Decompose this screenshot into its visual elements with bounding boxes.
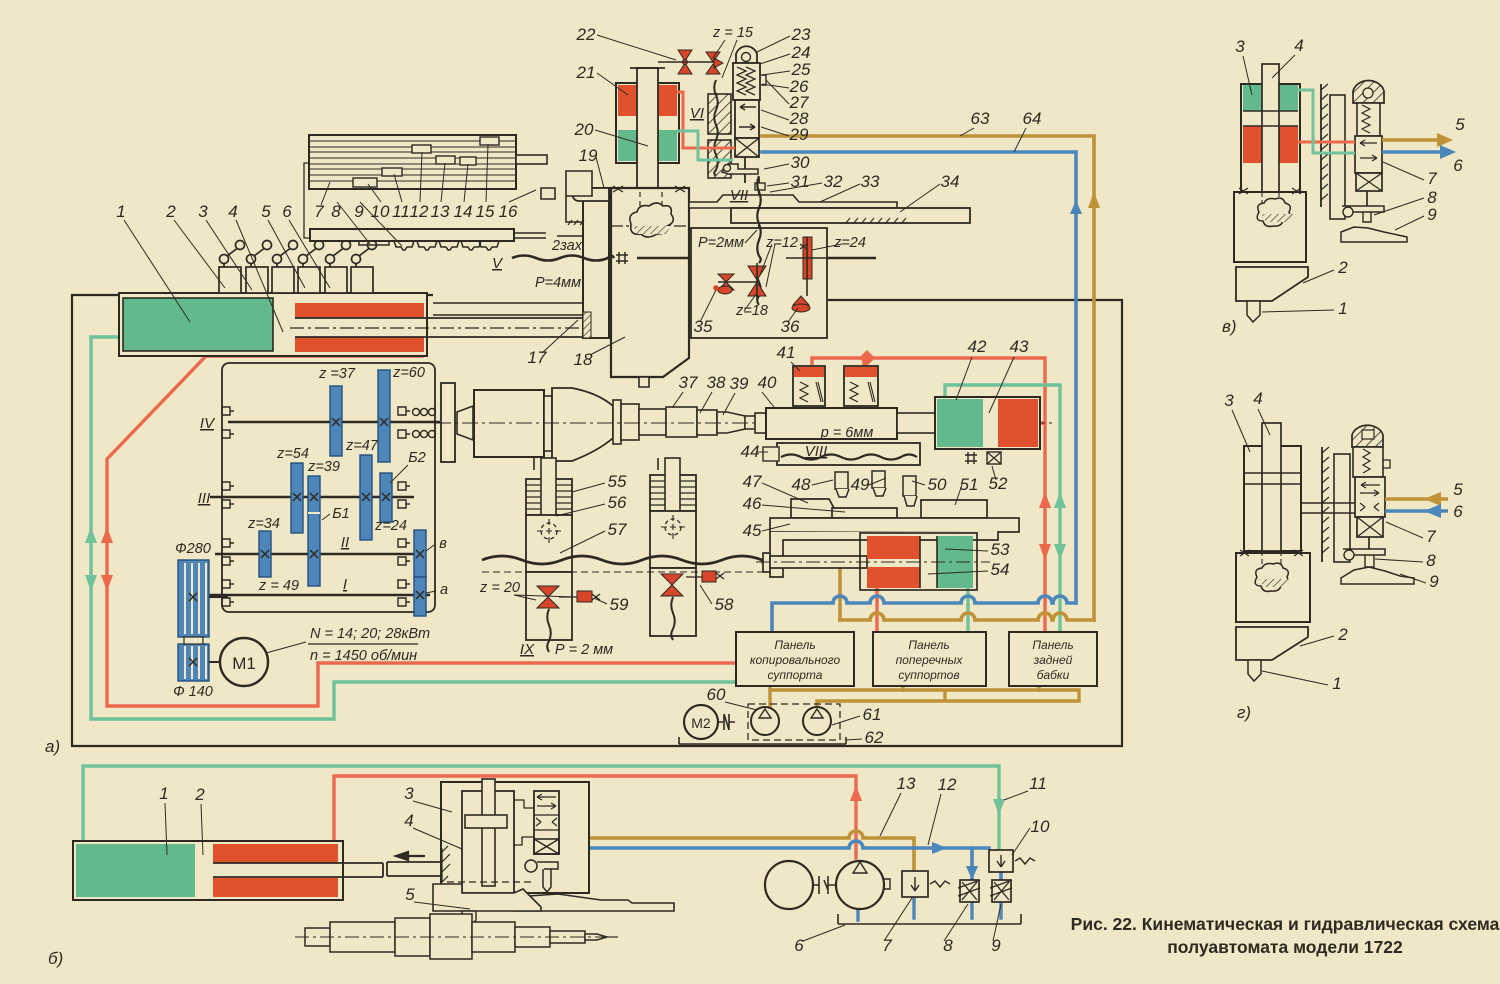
svg-text:12: 12: [938, 775, 957, 794]
svg-text:n = 1450 об/мин: n = 1450 об/мин: [310, 648, 417, 664]
svg-text:5: 5: [405, 885, 415, 904]
svg-text:7: 7: [314, 202, 324, 221]
svg-text:33: 33: [861, 172, 880, 191]
svg-text:поперечных: поперечных: [896, 653, 964, 667]
svg-text:1: 1: [1338, 299, 1347, 318]
svg-text:62: 62: [865, 728, 884, 747]
svg-text:б): б): [48, 949, 63, 968]
svg-text:63: 63: [971, 109, 990, 128]
svg-text:копировального: копировального: [750, 653, 841, 667]
svg-text:42: 42: [968, 337, 987, 356]
svg-text:49: 49: [851, 475, 870, 494]
svg-text:8: 8: [1426, 551, 1436, 570]
svg-text:11: 11: [1029, 774, 1047, 793]
svg-text:Панель: Панель: [908, 638, 949, 652]
svg-text:52: 52: [989, 474, 1008, 493]
svg-text:Рис. 22. Кинематическая и гидр: Рис. 22. Кинематическая и гидравлическая…: [1071, 914, 1500, 934]
svg-text:16: 16: [499, 202, 518, 221]
svg-text:2заx: 2заx: [551, 238, 583, 254]
svg-text:z=24: z=24: [374, 518, 407, 534]
svg-text:64: 64: [1023, 109, 1042, 128]
svg-text:Р=2мм: Р=2мм: [698, 235, 744, 251]
svg-text:6: 6: [1453, 502, 1463, 521]
svg-text:20: 20: [574, 120, 594, 139]
svg-text:2: 2: [1337, 258, 1348, 277]
svg-text:а: а: [440, 582, 448, 598]
svg-text:II: II: [341, 534, 349, 551]
svg-text:7: 7: [1426, 527, 1436, 546]
svg-text:6: 6: [1453, 156, 1463, 175]
svg-text:г): г): [1237, 703, 1251, 722]
svg-text:Панель: Панель: [1032, 638, 1073, 652]
svg-text:22: 22: [576, 25, 596, 44]
svg-text:z=18: z=18: [735, 303, 768, 319]
svg-text:z = 15: z = 15: [712, 25, 754, 41]
svg-text:37: 37: [679, 373, 698, 392]
svg-text:в: в: [439, 536, 447, 552]
svg-text:29: 29: [789, 125, 809, 144]
svg-text:суппортов: суппортов: [898, 668, 959, 682]
svg-text:43: 43: [1010, 337, 1029, 356]
svg-text:Р = 2 мм: Р = 2 мм: [555, 642, 613, 658]
svg-text:6: 6: [794, 936, 804, 955]
svg-text:35: 35: [694, 317, 713, 336]
svg-text:13: 13: [897, 774, 916, 793]
svg-text:47: 47: [743, 472, 762, 491]
svg-text:46: 46: [743, 494, 762, 513]
svg-text:56: 56: [608, 493, 627, 512]
svg-text:59: 59: [610, 595, 629, 614]
svg-text:z=54: z=54: [276, 446, 309, 462]
svg-text:III: III: [198, 490, 211, 507]
svg-text:10: 10: [371, 202, 390, 221]
svg-text:z = 20: z = 20: [479, 580, 520, 596]
svg-text:5: 5: [1455, 115, 1465, 134]
svg-text:N = 14; 20; 28кВт: N = 14; 20; 28кВт: [310, 626, 430, 642]
svg-text:z=24: z=24: [833, 235, 866, 251]
svg-text:I: I: [343, 576, 347, 593]
svg-text:6: 6: [282, 202, 292, 221]
svg-text:3: 3: [1235, 37, 1245, 56]
svg-text:z =37: z =37: [318, 366, 356, 382]
svg-text:z=47: z=47: [345, 438, 379, 454]
svg-text:а): а): [45, 737, 60, 756]
svg-text:9: 9: [991, 936, 1001, 955]
svg-text:суппорта: суппорта: [768, 668, 823, 682]
svg-text:1: 1: [159, 784, 168, 803]
svg-text:9: 9: [1429, 572, 1439, 591]
svg-text:Ф280: Ф280: [175, 541, 211, 557]
svg-text:9: 9: [1427, 205, 1437, 224]
svg-text:Б1: Б1: [332, 506, 350, 522]
svg-text:10: 10: [1031, 817, 1050, 836]
svg-text:48: 48: [792, 475, 811, 494]
svg-text:5: 5: [261, 202, 271, 221]
svg-text:в): в): [1222, 317, 1237, 336]
svg-text:бабки: бабки: [1037, 668, 1070, 682]
svg-text:39: 39: [730, 374, 749, 393]
svg-text:2: 2: [165, 202, 176, 221]
svg-text:44: 44: [741, 442, 760, 461]
svg-text:5: 5: [1453, 480, 1463, 499]
svg-text:Б2: Б2: [408, 450, 426, 466]
svg-text:VII: VII: [730, 187, 748, 204]
svg-text:60: 60: [707, 685, 726, 704]
svg-text:50: 50: [928, 475, 947, 494]
svg-text:36: 36: [781, 317, 800, 336]
svg-text:1: 1: [116, 202, 125, 221]
svg-text:1: 1: [1332, 674, 1341, 693]
svg-text:VIII: VIII: [805, 443, 828, 460]
svg-text:57: 57: [608, 520, 627, 539]
svg-text:51: 51: [960, 475, 979, 494]
svg-text:z=39: z=39: [307, 459, 340, 475]
svg-text:58: 58: [715, 595, 734, 614]
svg-text:Панель: Панель: [774, 638, 815, 652]
svg-text:21: 21: [576, 63, 596, 82]
svg-text:11: 11: [392, 202, 410, 221]
svg-text:М1: М1: [232, 654, 256, 673]
svg-text:полуавтомата модели 1722: полуавтомата модели 1722: [1167, 937, 1403, 957]
svg-text:15: 15: [476, 202, 495, 221]
svg-text:61: 61: [863, 705, 882, 724]
svg-text:38: 38: [707, 373, 726, 392]
svg-text:7: 7: [1427, 169, 1437, 188]
svg-text:М2: М2: [691, 715, 711, 731]
svg-text:45: 45: [743, 521, 762, 540]
svg-text:z = 49: z = 49: [258, 578, 299, 594]
svg-text:19: 19: [579, 146, 598, 165]
svg-text:2: 2: [1337, 625, 1348, 644]
svg-text:13: 13: [431, 202, 450, 221]
svg-text:30: 30: [791, 153, 810, 172]
svg-text:4: 4: [1294, 36, 1303, 55]
svg-text:34: 34: [941, 172, 960, 191]
svg-text:z=34: z=34: [247, 516, 280, 532]
svg-text:IV: IV: [200, 415, 216, 432]
svg-text:32: 32: [824, 172, 843, 191]
svg-text:7: 7: [882, 936, 892, 955]
svg-text:12: 12: [410, 202, 429, 221]
svg-text:40: 40: [758, 373, 777, 392]
svg-text:8: 8: [943, 936, 953, 955]
svg-text:4: 4: [1253, 389, 1262, 408]
svg-text:54: 54: [991, 560, 1010, 579]
svg-text:55: 55: [608, 472, 627, 491]
svg-text:18: 18: [574, 350, 593, 369]
svg-text:z=60: z=60: [392, 365, 425, 381]
svg-text:23: 23: [791, 25, 811, 44]
svg-text:4: 4: [228, 202, 237, 221]
svg-text:4: 4: [404, 811, 413, 830]
svg-text:задней: задней: [1033, 653, 1073, 667]
svg-text:3: 3: [198, 202, 208, 221]
svg-text:3: 3: [1224, 391, 1234, 410]
svg-text:14: 14: [454, 202, 473, 221]
svg-text:VI: VI: [690, 105, 704, 122]
svg-text:Р=4мм: Р=4мм: [535, 275, 581, 291]
svg-text:2: 2: [194, 785, 205, 804]
svg-text:IX: IX: [520, 641, 535, 658]
svg-text:3: 3: [404, 784, 414, 803]
svg-text:Ф 140: Ф 140: [173, 684, 213, 700]
svg-text:р = 6мм: р = 6мм: [820, 425, 874, 441]
svg-text:53: 53: [991, 540, 1010, 559]
svg-text:41: 41: [777, 343, 796, 362]
